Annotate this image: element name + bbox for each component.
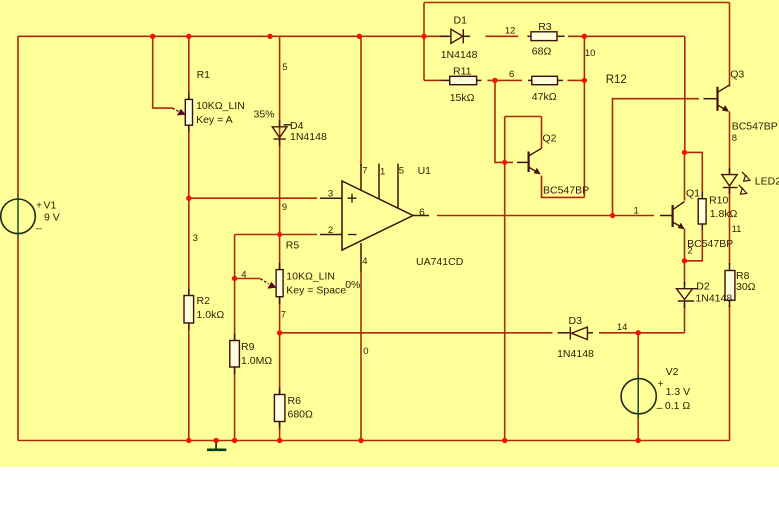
svg-text:–: –: [36, 223, 42, 235]
svg-text:5: 5: [282, 62, 287, 73]
svg-text:R2: R2: [197, 295, 211, 307]
svg-text:1: 1: [634, 205, 639, 216]
svg-text:1N4148: 1N4148: [557, 348, 594, 360]
svg-text:2: 2: [687, 246, 692, 257]
svg-text:6: 6: [509, 69, 514, 80]
svg-text:35%: 35%: [254, 109, 275, 121]
svg-text:R11: R11: [453, 66, 472, 78]
svg-text:9: 9: [282, 202, 287, 213]
svg-text:–: –: [657, 402, 663, 414]
svg-text:U1: U1: [418, 165, 432, 177]
svg-text:9 V: 9 V: [44, 211, 60, 223]
svg-text:11: 11: [732, 224, 742, 235]
svg-text:1.0kΩ: 1.0kΩ: [197, 309, 225, 321]
svg-text:0: 0: [363, 346, 368, 357]
svg-text:6: 6: [419, 207, 425, 219]
svg-text:1.0MΩ: 1.0MΩ: [241, 355, 272, 367]
svg-text:BC547BP: BC547BP: [687, 238, 733, 250]
svg-text:LED2: LED2: [755, 175, 779, 187]
svg-text:7: 7: [362, 166, 367, 177]
svg-text:D3: D3: [569, 315, 583, 327]
svg-text:BC547BP: BC547BP: [732, 121, 778, 133]
svg-text:3: 3: [328, 189, 333, 200]
svg-text:15kΩ: 15kΩ: [450, 92, 475, 104]
svg-text:4: 4: [362, 256, 367, 267]
svg-text:Key = A: Key = A: [196, 114, 232, 126]
svg-text:R9: R9: [241, 341, 255, 353]
svg-text:Q3: Q3: [730, 69, 744, 81]
svg-text:1N4148: 1N4148: [290, 131, 327, 143]
svg-text:R6: R6: [288, 395, 302, 407]
svg-text:BC547BP: BC547BP: [543, 184, 589, 196]
svg-text:3: 3: [193, 233, 198, 244]
svg-text:R1: R1: [197, 69, 211, 81]
svg-text:1.8kΩ: 1.8kΩ: [710, 208, 738, 220]
svg-text:0%: 0%: [345, 279, 360, 291]
svg-text:Q2: Q2: [543, 132, 557, 144]
svg-text:R10: R10: [709, 195, 728, 207]
svg-text:680Ω: 680Ω: [288, 409, 314, 421]
svg-text:0.1 Ω: 0.1 Ω: [665, 400, 691, 412]
svg-text:5: 5: [399, 166, 404, 177]
svg-text:4: 4: [241, 270, 246, 281]
svg-text:Q1: Q1: [686, 187, 700, 199]
svg-text:30Ω: 30Ω: [736, 281, 756, 293]
svg-text:14: 14: [617, 322, 628, 333]
svg-text:UA741CD: UA741CD: [416, 256, 464, 268]
svg-text:+: +: [658, 378, 664, 390]
svg-text:68Ω: 68Ω: [532, 46, 552, 58]
svg-text:47kΩ: 47kΩ: [532, 91, 557, 103]
svg-text:1N4148: 1N4148: [441, 49, 478, 61]
svg-text:10KΩ_LIN: 10KΩ_LIN: [286, 271, 335, 283]
svg-text:10: 10: [585, 48, 596, 59]
svg-text:D1: D1: [454, 14, 468, 26]
svg-text:Key = Space: Key = Space: [286, 285, 346, 297]
svg-text:V2: V2: [666, 366, 679, 378]
svg-text:R12: R12: [606, 74, 627, 86]
svg-text:1N4148: 1N4148: [695, 293, 732, 305]
svg-text:8: 8: [732, 133, 737, 144]
svg-text:1: 1: [380, 166, 385, 177]
svg-text:2: 2: [328, 225, 333, 236]
svg-text:+: +: [36, 200, 42, 212]
svg-text:1.3 V: 1.3 V: [666, 386, 691, 398]
svg-text:7: 7: [281, 309, 286, 320]
svg-text:R3: R3: [538, 21, 552, 33]
svg-text:D2: D2: [696, 280, 710, 292]
svg-text:R5: R5: [286, 240, 300, 252]
svg-text:12: 12: [505, 25, 516, 36]
svg-text:10KΩ_LIN: 10KΩ_LIN: [196, 100, 245, 112]
svg-text:V1: V1: [44, 200, 57, 212]
